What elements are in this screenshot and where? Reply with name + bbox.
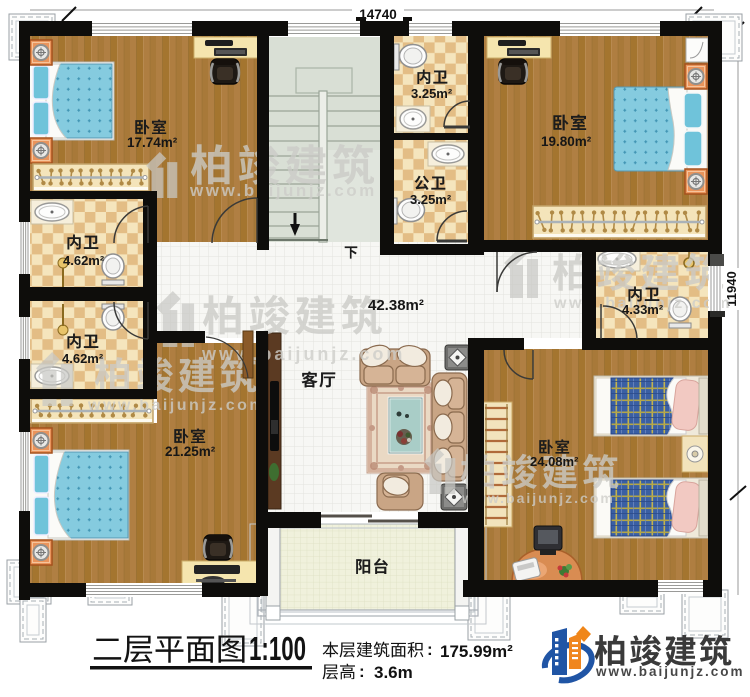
- svg-text:www.baijunjz.com: www.baijunjz.com: [87, 397, 266, 414]
- svg-text:3.25m²: 3.25m²: [410, 192, 452, 207]
- svg-text:3.25m²: 3.25m²: [411, 86, 453, 101]
- svg-text:19.80m²: 19.80m²: [541, 134, 592, 149]
- svg-text:4.62m²: 4.62m²: [63, 253, 105, 268]
- svg-text::: :: [359, 662, 365, 681]
- svg-text:3.6m: 3.6m: [374, 663, 413, 682]
- svg-text:www.baijunjz.com: www.baijunjz.com: [189, 181, 377, 200]
- svg-text:4.62m²: 4.62m²: [62, 351, 104, 366]
- svg-text:14740: 14740: [359, 7, 397, 22]
- svg-text:4.33m²: 4.33m²: [622, 302, 664, 317]
- svg-text:42.38m²: 42.38m²: [368, 297, 424, 314]
- svg-text:17.74m²: 17.74m²: [127, 135, 178, 150]
- svg-text:21.25m²: 21.25m²: [165, 444, 216, 459]
- svg-text:24.08m²: 24.08m²: [530, 454, 579, 469]
- svg-text:175.99m²: 175.99m²: [440, 642, 513, 661]
- svg-text:www.baijunjz.com: www.baijunjz.com: [595, 664, 745, 679]
- svg-text::: :: [427, 640, 433, 659]
- svg-text:www.baijunjz.com: www.baijunjz.com: [461, 490, 615, 506]
- svg-text:1:100: 1:100: [249, 630, 306, 667]
